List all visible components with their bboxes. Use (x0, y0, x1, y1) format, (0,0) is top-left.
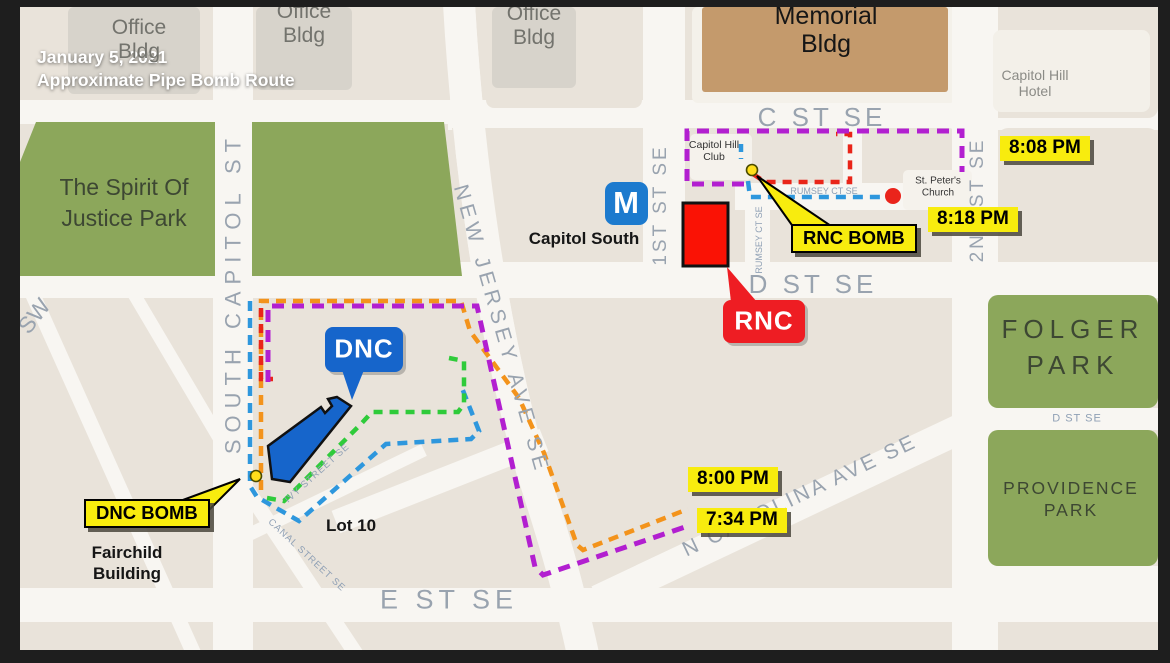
red-dot-marker (885, 188, 901, 204)
frame-bottom (0, 650, 1170, 663)
rnc-bubble (723, 300, 805, 343)
d-small-overlay (988, 408, 1158, 430)
office-building-3 (492, 7, 576, 88)
frame-right (1158, 0, 1170, 663)
spirit-park-east (252, 122, 462, 276)
dnc-bubble (325, 327, 403, 372)
alley-n-overlay (843, 128, 862, 188)
pipe-bomb-route-map: January 5, 2021 Approximate Pipe Bomb Ro… (0, 0, 1170, 663)
office-building-2 (256, 7, 352, 90)
capitol-hill-hotel-building (993, 30, 1150, 112)
providence-park-shape (988, 430, 1158, 566)
metro-logo-box (605, 182, 648, 225)
folger-park-shape (988, 295, 1158, 408)
memorial-building (702, 7, 948, 92)
south-capitol-overlay (213, 7, 253, 650)
frame-left (0, 0, 20, 663)
capitol-hill-club-building (690, 134, 752, 180)
frame-top (0, 0, 1170, 7)
alley-s-overlay (745, 206, 770, 268)
spirit-park-west (20, 122, 215, 276)
first-street-overlay (643, 7, 685, 298)
providence-south-street (988, 566, 1158, 590)
rnc-building (683, 203, 728, 266)
map-canvas (0, 0, 1170, 663)
office-building-1 (68, 7, 200, 94)
block-east-of-2nd (998, 128, 1158, 262)
rnc-bomb-marker (747, 165, 758, 176)
dnc-bomb-marker (251, 471, 262, 482)
st-peters-church-building (903, 170, 972, 210)
